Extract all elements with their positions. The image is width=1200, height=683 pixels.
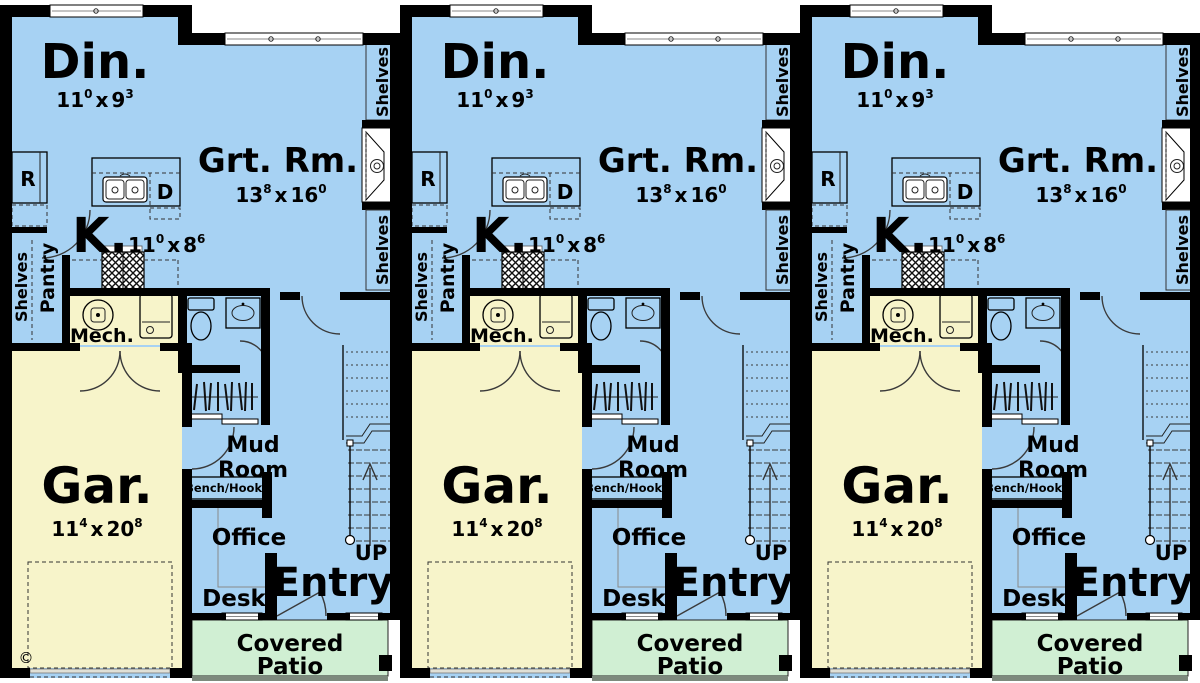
unit-3: [800, 0, 1200, 681]
unit-1: [0, 0, 400, 681]
floor-plan-svg: Din. 110x93 Grt. Rm. 138x160 K. 110x86 G…: [0, 0, 1200, 683]
copyright-symbol: ©: [19, 649, 34, 667]
floor-plan: Din. 110x93 Grt. Rm. 138x160 K. 110x86 G…: [0, 0, 1200, 683]
unit-2: [400, 0, 800, 681]
